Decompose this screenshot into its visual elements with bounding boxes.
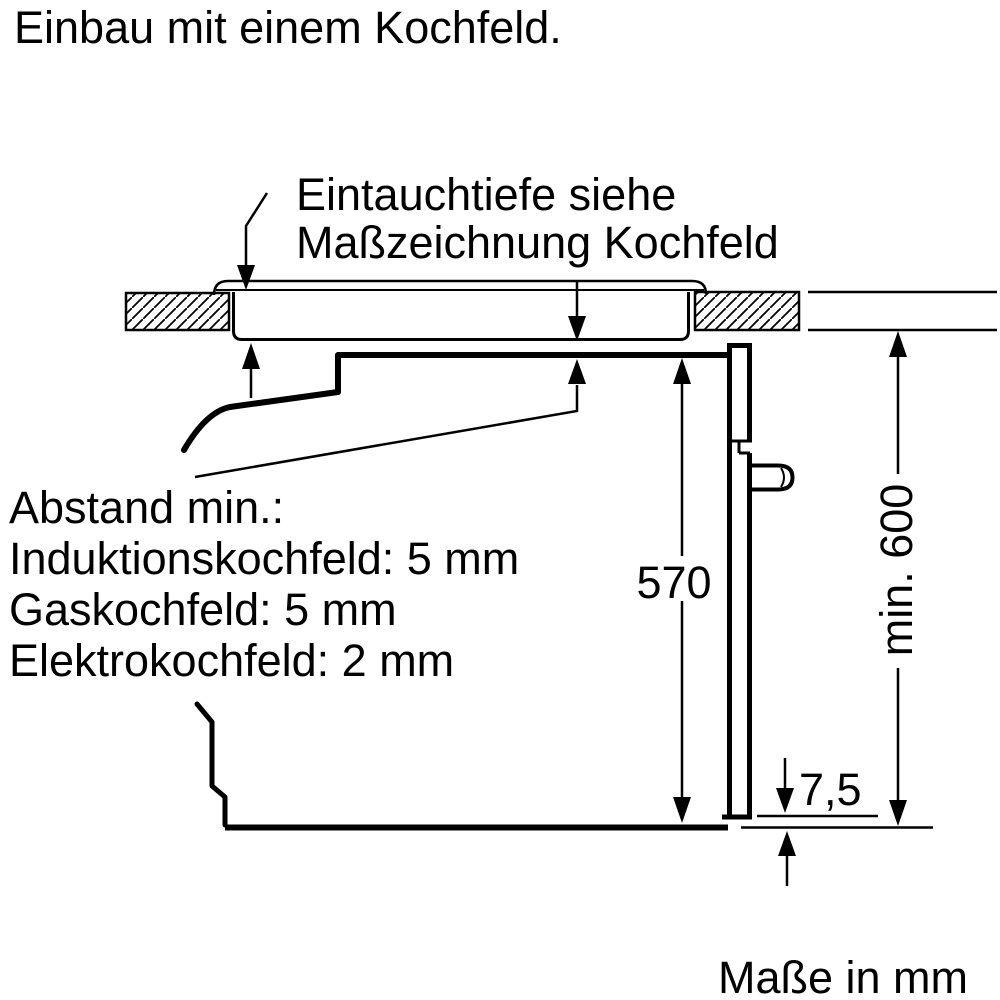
clearance-gap-arrow-left: [242, 343, 260, 398]
diagram-canvas: Einbau mit einem Kochfeld. Eintauchtiefe…: [0, 0, 1000, 1000]
worktop-extension-lines: [808, 292, 997, 330]
clearance-induction: Induktionskochfeld: 5 mm: [9, 533, 519, 584]
units-note: Maße in mm: [718, 952, 968, 1000]
dimension-niche-height-value: min. 600: [871, 484, 922, 657]
oven-front-notch: [729, 441, 752, 453]
worktop-section-right: [695, 292, 799, 330]
oven-control-knob: [749, 466, 793, 490]
installation-diagram: Einbau mit einem Kochfeld. Eintauchtiefe…: [0, 0, 1000, 1000]
dimension-door-gap-value: 7,5: [799, 764, 862, 815]
cooktop-glass-top: [214, 281, 706, 295]
immersion-leader-arrow-left: [237, 193, 267, 290]
dimension-niche-height: min. 600: [871, 331, 922, 826]
clearance-note: Abstand min.: Induktionskochfeld: 5 mm G…: [9, 482, 519, 686]
immersion-depth-note: Eintauchtiefe siehe Maßzeichnung Kochfel…: [296, 169, 779, 268]
clearance-leader-arrow: [195, 359, 586, 477]
cooktop-tub: [234, 292, 689, 340]
oven-top-panel: [184, 355, 727, 450]
clearance-gas: Gaskochfeld: 5 mm: [9, 584, 397, 635]
immersion-note-line1: Eintauchtiefe siehe: [296, 169, 676, 220]
dimension-oven-height: 570: [636, 358, 711, 823]
immersion-note-line2: Maßzeichnung Kochfeld: [296, 217, 779, 268]
cabinet-left-outline: [197, 704, 225, 825]
clearance-electric: Elektrokochfeld: 2 mm: [9, 635, 454, 686]
worktop-section-left: [126, 293, 229, 330]
clearance-title: Abstand min.:: [9, 482, 284, 533]
page-title: Einbau mit einem Kochfeld.: [14, 2, 562, 53]
cooktop: [214, 281, 706, 340]
dimension-oven-height-value: 570: [636, 557, 711, 608]
dimension-door-gap: 7,5: [741, 758, 933, 886]
